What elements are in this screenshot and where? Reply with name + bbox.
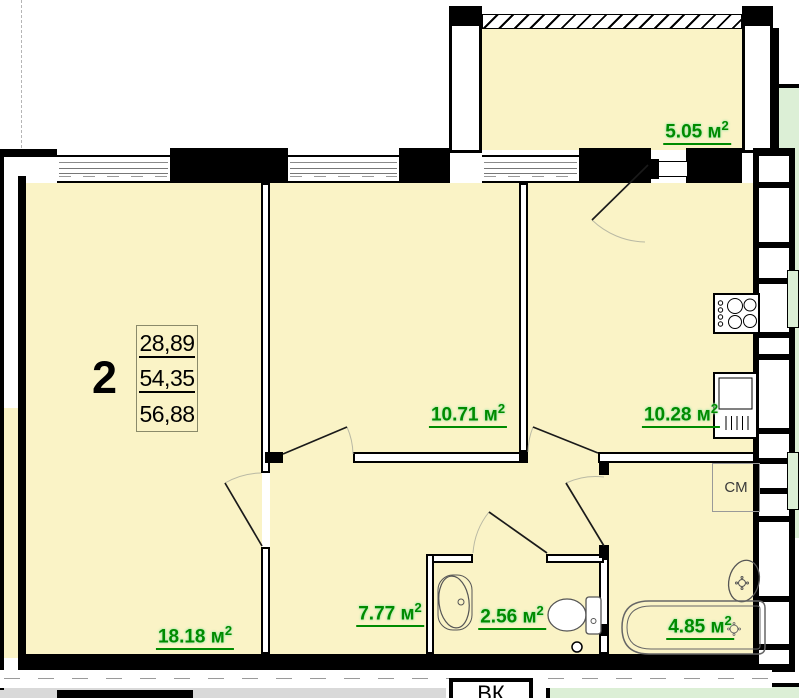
door-leaves	[225, 165, 648, 553]
total-area-line: 28,89	[139, 330, 194, 358]
bathroom-door-leaf	[566, 483, 604, 546]
ventilation-label: ВК	[477, 682, 505, 698]
wc-door-leaf	[489, 512, 547, 553]
wc-sink-icon	[436, 574, 472, 630]
bath-sink-icon	[724, 557, 763, 605]
living-area-line: 54,35	[139, 365, 194, 393]
rooms-count: 2	[92, 352, 132, 404]
door-swing-arcs	[225, 220, 645, 553]
kitchen-door-leaf	[533, 427, 598, 453]
washing-machine-label: СМ	[724, 479, 747, 496]
area-label-wc: 2.56 м2	[478, 601, 546, 630]
area-label-living-room: 18.18 м2	[156, 621, 234, 650]
area-label-bathroom: 4.85 м2	[666, 611, 734, 640]
area-label-hallway: 7.77 м2	[356, 598, 424, 627]
bedroom-door-leaf	[283, 427, 347, 454]
area-label-kitchen: 10.28 м2	[642, 399, 720, 428]
toilet-icon	[548, 597, 601, 634]
full-area-line: 56,88	[139, 401, 194, 427]
balcony-door-leaf	[592, 165, 648, 220]
apartment-info-box: 28,89 54,35 56,88	[136, 325, 198, 432]
ventilation-box: ВК	[449, 678, 533, 698]
stove-icon	[714, 294, 759, 333]
living-door-leaf	[225, 483, 262, 546]
door-stop	[572, 642, 582, 652]
floor-plan: 5.05 м2 10.71 м2 10.28 м2 18.18 м2 7.77 …	[0, 0, 799, 698]
washing-machine-box: СМ	[712, 463, 760, 512]
area-label-balcony: 5.05 м2	[663, 116, 731, 145]
kitchen-sink-icon	[714, 373, 757, 438]
area-label-bedroom: 10.71 м2	[429, 399, 507, 428]
